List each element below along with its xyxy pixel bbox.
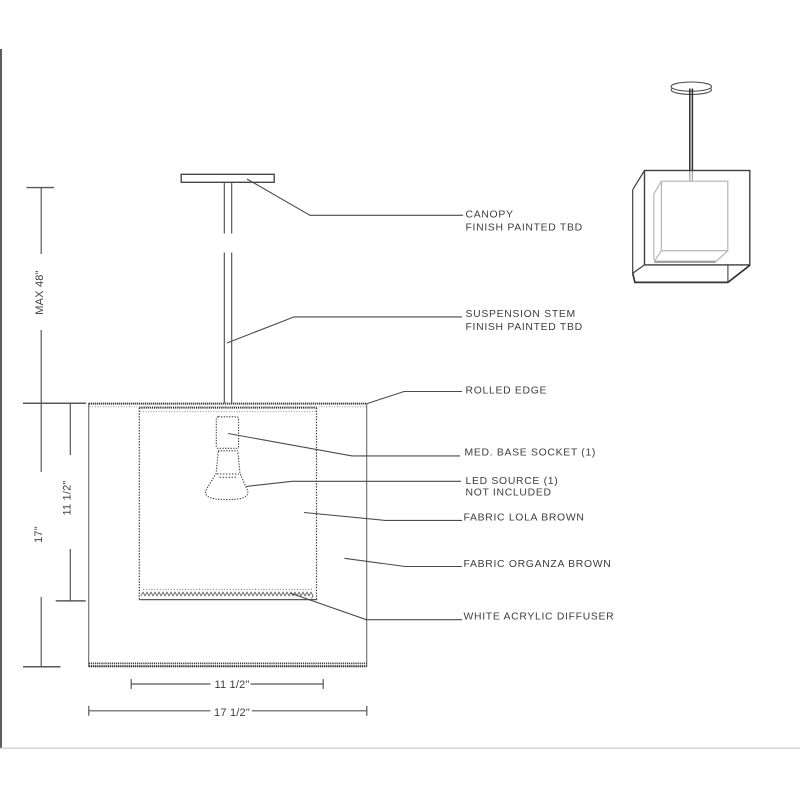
svg-text:17 1/2": 17 1/2" xyxy=(214,707,250,719)
svg-text:ROLLED EDGE: ROLLED EDGE xyxy=(466,386,548,397)
svg-text:17": 17" xyxy=(33,526,45,543)
svg-text:WHITE ACRYLIC DIFFUSER: WHITE ACRYLIC DIFFUSER xyxy=(464,612,615,623)
svg-text:CANOPY: CANOPY xyxy=(466,210,514,221)
svg-text:MAX 48": MAX 48" xyxy=(34,270,46,314)
svg-text:FABRIC LOLA BROWN: FABRIC LOLA BROWN xyxy=(464,512,585,523)
svg-text:FABRIC ORGANZA BROWN: FABRIC ORGANZA BROWN xyxy=(464,559,612,570)
svg-text:11 1/2": 11 1/2" xyxy=(62,480,74,515)
svg-text:LED SOURCE (1): LED SOURCE (1) xyxy=(466,476,559,487)
svg-text:11 1/2": 11 1/2" xyxy=(214,679,249,691)
svg-text:FINISH PAINTED TBD: FINISH PAINTED TBD xyxy=(466,223,583,234)
svg-text:MED. BASE SOCKET (1): MED. BASE SOCKET (1) xyxy=(465,448,597,459)
svg-text:SUSPENSION STEM: SUSPENSION STEM xyxy=(466,309,576,320)
svg-text:FINISH PAINTED TBD: FINISH PAINTED TBD xyxy=(466,322,583,333)
svg-text:NOT INCLUDED: NOT INCLUDED xyxy=(466,488,552,499)
